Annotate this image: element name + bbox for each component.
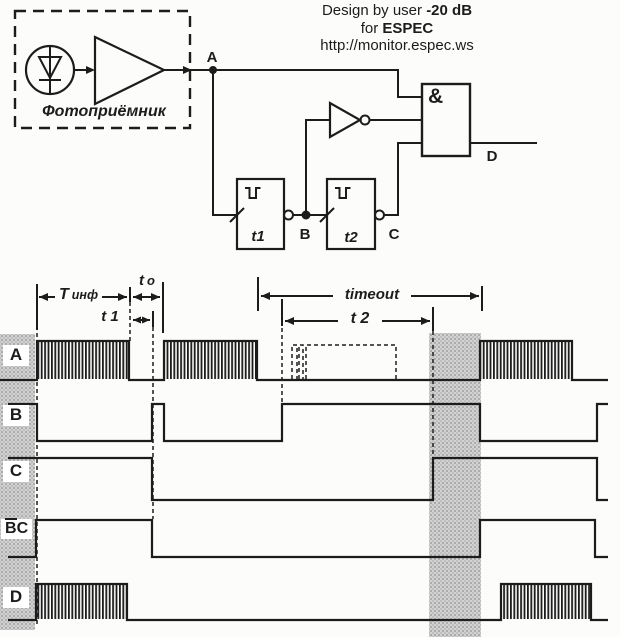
t-2-dimension-label: t 2 [338,311,382,328]
arrowhead-icon [470,292,479,300]
and-gate-label: & [428,86,443,108]
pulse-glyph-icon [335,188,351,198]
header-url: http://monitor.espec.ws [262,37,532,55]
t1-block-label: t1 [243,229,273,245]
inverter-gate [330,103,422,137]
t-1-dimension-label: t 1 [95,309,125,325]
waveform-D [8,584,608,620]
header-line1: Design by user -20 dB [262,2,532,20]
row-label-a: A [3,345,29,366]
arrowhead-icon [142,317,150,324]
amplifier-triangle [95,37,164,104]
waveform-A [0,341,608,380]
photoreceiver-label: Фотоприёмник [28,104,180,121]
circuit-wiring [209,66,537,222]
row-label-not-b-and-c: BC [1,519,32,539]
arrowhead-icon [118,293,127,301]
edge-trigger-slash-icon [230,208,244,222]
inverted-output-circle-icon [375,211,384,220]
arrowhead-icon [133,317,141,324]
row-label-d: D [3,587,29,608]
waveform-C [8,458,608,500]
pulse-burst-A [165,342,256,379]
arrowhead-icon [151,293,160,301]
arrowhead-icon [133,293,142,301]
pulse-burst-A [38,342,128,379]
arrowhead-icon [183,66,192,74]
arrowhead-icon [285,317,294,325]
node-c-label: C [383,227,405,243]
arrowhead-icon [86,66,95,74]
pulse-glyph-icon [245,188,261,198]
t-inf-dimension-label: Тинф [55,287,102,304]
node-d-label: D [481,149,503,165]
arrowhead-icon [261,292,270,300]
node-a-dot [209,66,217,74]
inverted-output-circle-icon [284,211,293,220]
dashed-guides [37,302,433,627]
node-a-label: A [201,50,223,66]
t-o-dimension-label: to [130,273,164,290]
waveforms [0,341,608,620]
arrowhead-icon [421,317,430,325]
node-b-dot [302,211,311,220]
scanned-schematic-page: Design by user -20 dB for ESPEC http://m… [0,0,620,637]
photodiode-triangle [39,57,61,78]
diagram-linework [0,0,620,637]
ghost-pulses-A [292,345,396,379]
row-label-c: C [3,461,29,482]
row-label-b: B [3,405,29,426]
node-b-label: B [294,227,316,243]
pulse-burst-D [502,585,590,619]
shade-band-timeout-end [429,333,481,637]
arrowhead-icon [39,293,48,301]
edge-trigger-slash-icon [320,208,334,222]
pulse-burst-A [481,342,571,379]
inverter-bubble-icon [361,116,370,125]
header-line2: for ESPEC [262,20,532,38]
header-credit: Design by user -20 dB for ESPEC http://m… [262,2,532,55]
timeout-dimension-label: timeout [333,287,411,303]
waveform-BC [8,520,608,557]
waveform-B [8,404,608,441]
t2-block-label: t2 [336,230,366,246]
shade-band-left [0,334,35,630]
pulse-burst-D [37,585,126,619]
